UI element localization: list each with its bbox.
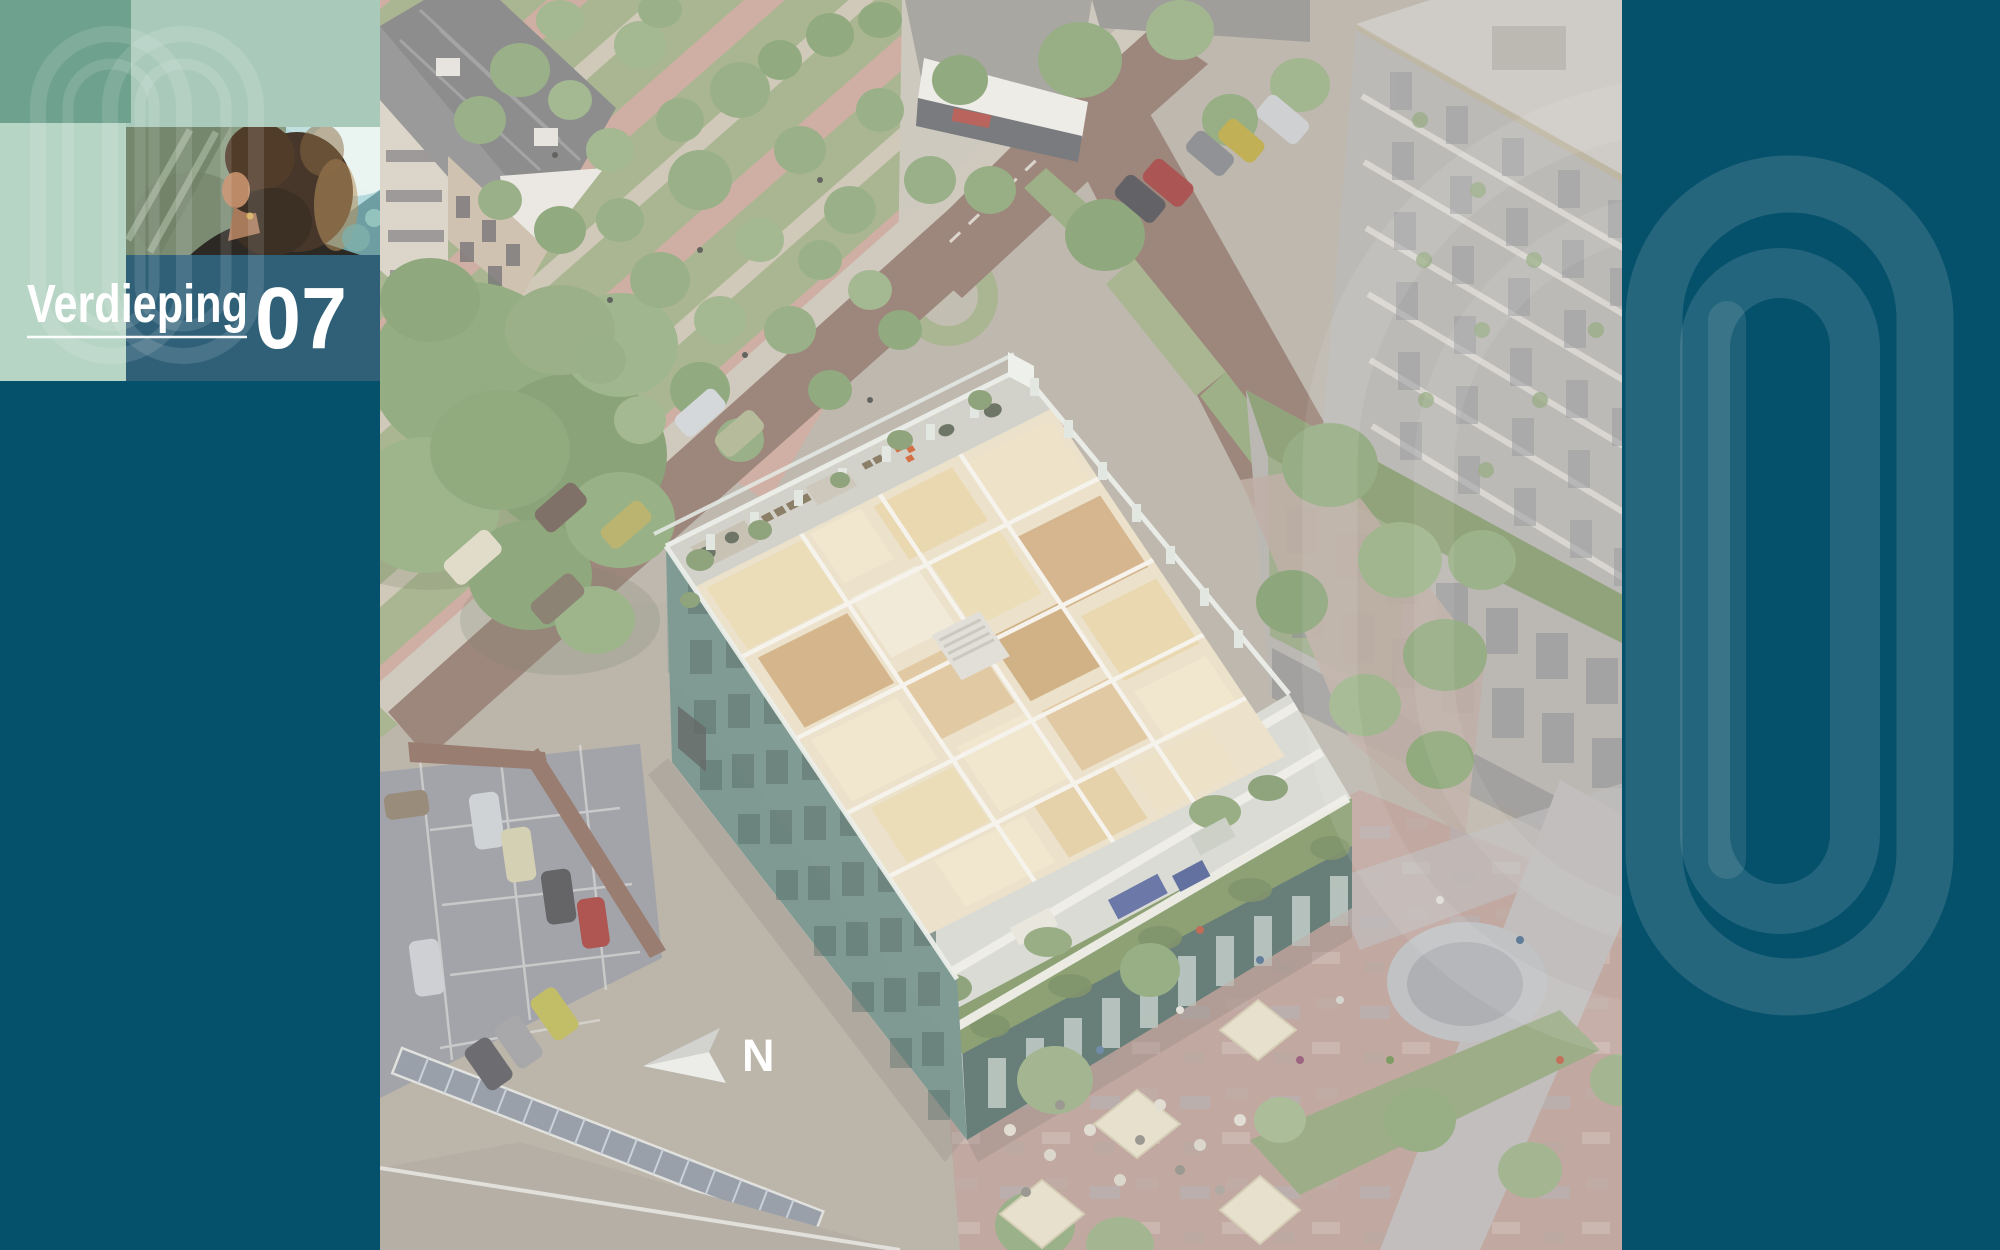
svg-text:Verdieping: Verdieping: [27, 274, 248, 334]
svg-text:07: 07: [255, 270, 347, 367]
